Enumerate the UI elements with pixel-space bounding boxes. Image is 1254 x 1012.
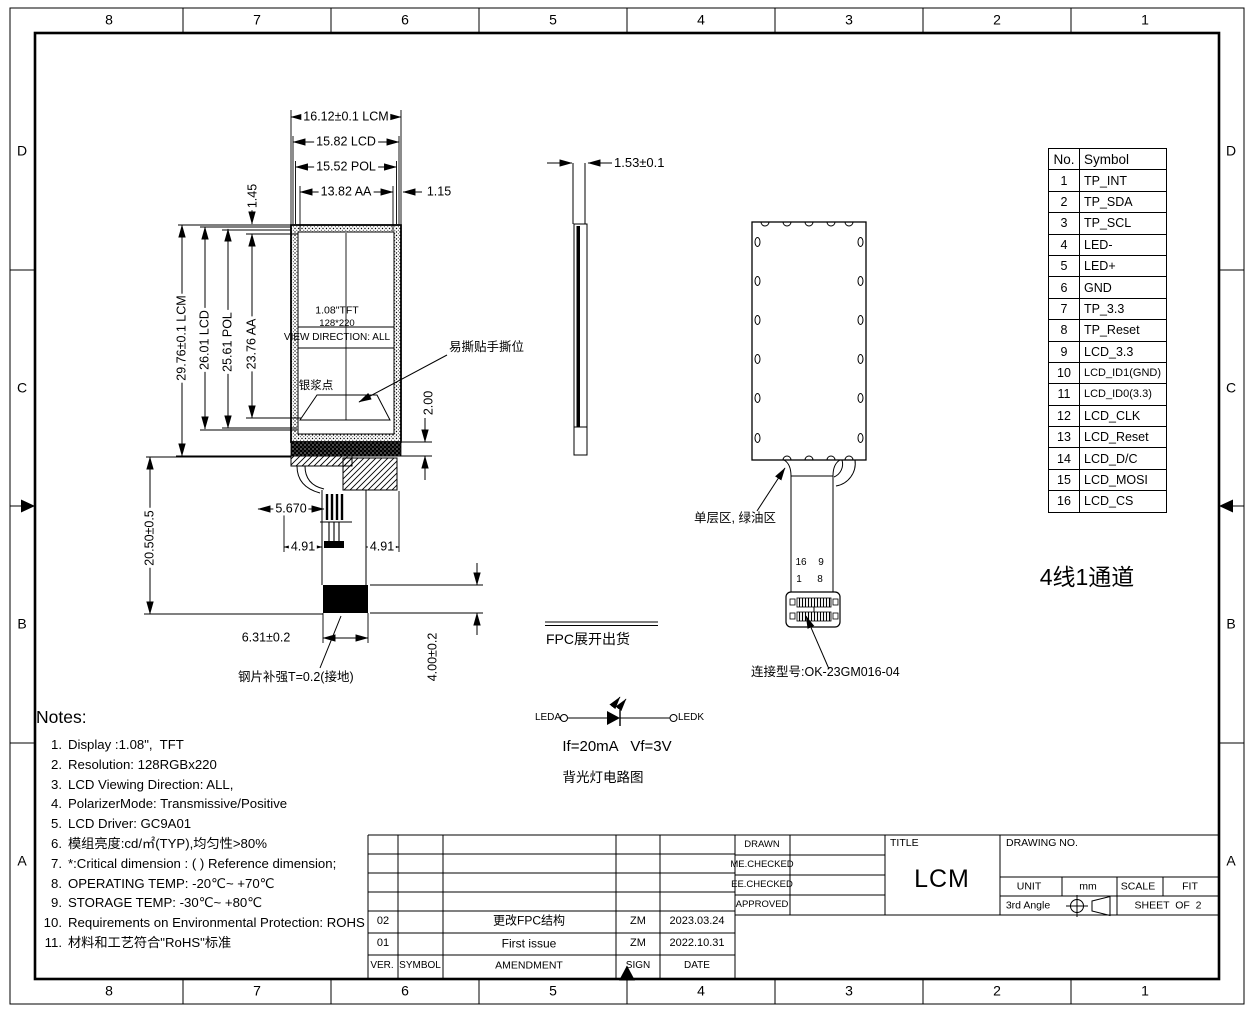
zone-row-right-a: A (1226, 854, 1235, 869)
table-row: 5LED+ (1049, 255, 1167, 276)
fpc-ship-note: FPC展开出货 (546, 632, 630, 647)
table-row: 14LCD_D/C (1049, 448, 1167, 469)
zone-row-right-d: D (1226, 144, 1236, 159)
dim-top-pol: 15.52 POL (314, 160, 378, 173)
pin-no: 4 (1049, 234, 1080, 255)
list-item: 3.LCD Viewing Direction: ALL, (36, 775, 376, 795)
table-row: 13LCD_Reset (1049, 427, 1167, 448)
rev-amendment: 更改FPC结构 (493, 915, 565, 928)
note-text: LCD Driver: GC9A01 (68, 814, 191, 834)
dim-491-right: 4.91 (368, 540, 396, 553)
zone-col-bottom-8: 8 (105, 984, 113, 999)
pin-no: 10 (1049, 362, 1080, 383)
fog-band (291, 442, 401, 456)
dim-400: 4.00±0.2 (426, 633, 439, 682)
note-number: 1. (36, 735, 62, 755)
page-title: LCM (914, 866, 970, 892)
zone-col-top-8: 8 (105, 13, 113, 28)
pin-no: 5 (1049, 255, 1080, 276)
led-spec-label: If=20mA Vf=3V (562, 739, 671, 755)
note-number: 8. (36, 874, 62, 894)
back-view (752, 222, 866, 669)
zone-row-right-b: B (1226, 617, 1235, 632)
note-number: 6. (36, 834, 62, 854)
fpc-pin-8: 8 (817, 575, 823, 586)
list-item: 8.OPERATING TEMP: -20℃~ +70℃ (36, 874, 376, 894)
table-row: 9LCD_3.3 (1049, 341, 1167, 362)
table-row: 7TP_3.3 (1049, 298, 1167, 319)
list-item: 6.模组亮度:cd/㎡(TYP),均匀性>80% (36, 834, 376, 854)
pin-symbol: LCD_D/C (1080, 448, 1167, 469)
list-item: 7.*:Critical dimension : ( ) Reference d… (36, 854, 376, 874)
pin-symbol: LCD_MOSI (1080, 469, 1167, 490)
display-resolution-label: 128*220 (319, 319, 354, 329)
zone-col-bottom-6: 6 (401, 984, 409, 999)
approved-label: APPROVED (736, 900, 789, 910)
note-number: 7. (36, 854, 62, 874)
list-item: 4.PolarizerMode: Transmissive/Positive (36, 794, 376, 814)
pin-table: No.Symbol 1TP_INT 2TP_SDA 3TP_SCL 4LED- … (1048, 148, 1167, 513)
pin-symbol: LCD_ID1(GND) (1080, 362, 1167, 383)
zone-col-top-7: 7 (253, 13, 261, 28)
pin-no: 6 (1049, 277, 1080, 298)
ledk-label: LEDK (678, 713, 704, 724)
rev-sign: ZM (630, 938, 646, 950)
rev-sign: ZM (630, 916, 646, 928)
table-row: 1TP_INT (1049, 170, 1167, 191)
note-number: 11. (36, 933, 62, 953)
zone-col-bottom-7: 7 (253, 984, 261, 999)
dim-200: 2.00 (422, 389, 435, 417)
pin-no: 11 (1049, 384, 1080, 405)
pin-no: 7 (1049, 298, 1080, 319)
fpc-pin-9: 9 (818, 558, 824, 569)
leda-label: LEDA (535, 713, 561, 724)
drawing-no-label: DRAWING NO. (1006, 838, 1078, 849)
table-row: 10LCD_ID1(GND) (1049, 362, 1167, 383)
fpc-pins (327, 494, 342, 520)
pin-symbol: TP_SDA (1080, 191, 1167, 212)
zone-row-left-b: B (17, 617, 26, 632)
dim-145: 1.45 (246, 182, 259, 210)
zone-col-top-3: 3 (845, 13, 853, 28)
rev-header-ver: VER. (370, 961, 393, 972)
scale-value: FIT (1182, 881, 1198, 892)
view-direction-label: VIEW DIRECTION: ALL (284, 333, 390, 344)
pin-no: 3 (1049, 213, 1080, 234)
zone-row-left-a: A (17, 854, 26, 869)
dim-left-lcm: 29.76±0.1 LCM (175, 293, 188, 382)
zone-row-right-c: C (1226, 381, 1236, 396)
table-row: 16LCD_CS (1049, 491, 1167, 512)
tear-tab-label: 易撕贴手撕位 (449, 341, 524, 354)
table-row: 6GND (1049, 277, 1167, 298)
zone-col-bottom-5: 5 (549, 984, 557, 999)
dim-491-left: 4.91 (289, 540, 317, 553)
list-item: 9.STORAGE TEMP: -30℃~ +80℃ (36, 893, 376, 913)
table-row: 12LCD_CLK (1049, 405, 1167, 426)
table-row: 4LED- (1049, 234, 1167, 255)
note-number: 5. (36, 814, 62, 834)
rev-ver: 01 (377, 938, 389, 950)
me-checked-label: ME.CHECKED (730, 860, 793, 870)
pin-symbol: TP_INT (1080, 170, 1167, 191)
rev-date: 2023.03.24 (669, 916, 724, 928)
rev-date: 2022.10.31 (669, 938, 724, 950)
pin-symbol: TP_Reset (1080, 320, 1167, 341)
list-item: 5.LCD Driver: GC9A01 (36, 814, 376, 834)
fpc-pin-16: 16 (795, 558, 806, 569)
dim-left-pol: 25.61 POL (221, 310, 234, 374)
rev-header-symbol: SYMBOL (399, 961, 441, 972)
pin-symbol: LCD_CS (1080, 491, 1167, 512)
channel-note: 4线1通道 (1040, 565, 1135, 589)
dim-5670: 5.670 (273, 502, 308, 515)
dim-115: 1.15 (427, 185, 451, 198)
dim-left-aa: 23.76 AA (245, 317, 258, 372)
zone-col-bottom-3: 3 (845, 984, 853, 999)
pin-no: 15 (1049, 469, 1080, 490)
pin-symbol: TP_SCL (1080, 213, 1167, 234)
pin-symbol: TP_3.3 (1080, 298, 1167, 319)
note-text: PolarizerMode: Transmissive/Positive (68, 794, 287, 814)
connector-shape (786, 592, 840, 627)
table-row: 8TP_Reset (1049, 320, 1167, 341)
list-item: 2.Resolution: 128RGBx220 (36, 755, 376, 775)
pin-no: 14 (1049, 448, 1080, 469)
table-row: 2TP_SDA (1049, 191, 1167, 212)
dim-2050: 20.50±0.5 (143, 508, 156, 568)
zone-col-top-6: 6 (401, 13, 409, 28)
unit-value: mm (1079, 881, 1097, 892)
note-text: Display :1.08", TFT (68, 735, 184, 755)
note-number: 3. (36, 775, 62, 795)
note-text: Requirements on Environmental Protection… (68, 913, 365, 933)
rev-header-sign: SIGN (626, 961, 650, 972)
stiffener-shape (323, 585, 368, 613)
notes-title: Notes: (36, 707, 376, 728)
pin-symbol: LCD_ID0(3.3) (1080, 384, 1167, 405)
pin-symbol: LCD_3.3 (1080, 341, 1167, 362)
pin-symbol: LED+ (1080, 255, 1167, 276)
drawing-sheet: 8 7 6 5 4 3 2 1 8 7 6 5 4 3 2 1 D C B A … (0, 0, 1254, 1012)
rev-amendment: First issue (502, 938, 557, 951)
list-item: 1.Display :1.08", TFT (36, 735, 376, 755)
single-layer-label: 单层区, 绿油区 (694, 512, 776, 525)
title-label: TITLE (890, 838, 919, 849)
ee-checked-label: EE.CHECKED (731, 880, 793, 890)
pin-no: 8 (1049, 320, 1080, 341)
table-row: 3TP_SCL (1049, 213, 1167, 234)
zone-row-left-c: C (17, 381, 27, 396)
note-text: LCD Viewing Direction: ALL, (68, 775, 233, 795)
pin-table-header-no: No. (1049, 149, 1080, 170)
zone-col-bottom-4: 4 (697, 984, 705, 999)
note-text: STORAGE TEMP: -30℃~ +80℃ (68, 893, 262, 913)
connector-label: 连接型号:OK-23GM016-04 (751, 666, 900, 679)
pin-no: 9 (1049, 341, 1080, 362)
list-item: 10.Requirements on Environmental Protect… (36, 913, 376, 933)
center-mark-right (1219, 500, 1233, 513)
note-number: 9. (36, 893, 62, 913)
zone-col-top-1: 1 (1141, 13, 1149, 28)
note-number: 10. (36, 913, 62, 933)
note-text: *:Critical dimension : ( ) Reference dim… (68, 854, 336, 874)
table-row: 11LCD_ID0(3.3) (1049, 384, 1167, 405)
front-view (291, 225, 401, 613)
note-text: 材料和工艺符合"RoHS"标准 (68, 933, 231, 953)
rev-header-date: DATE (684, 961, 710, 972)
note-text: 模组亮度:cd/㎡(TYP),均匀性>80% (68, 834, 267, 854)
title-block-lines (368, 835, 1219, 979)
pin-no: 12 (1049, 405, 1080, 426)
dim-thickness: 1.53±0.1 (614, 156, 665, 170)
single-layer-leader (757, 468, 785, 511)
rev-ver: 02 (377, 916, 389, 928)
note-text: OPERATING TEMP: -20℃~ +70℃ (68, 874, 275, 894)
notes-section: Notes: 1.Display :1.08", TFT 2.Resolutio… (36, 707, 376, 953)
pin-table-header-symbol: Symbol (1080, 149, 1167, 170)
note-number: 2. (36, 755, 62, 775)
zone-col-top-2: 2 (993, 13, 1001, 28)
display-size-label: 1.08"TFT (315, 305, 358, 316)
side-view (547, 163, 612, 455)
pin-no: 1 (1049, 170, 1080, 191)
note-number: 4. (36, 794, 62, 814)
dim-top-aa: 13.82 AA (319, 185, 374, 198)
backlight-caption: 背光灯电路图 (563, 771, 644, 785)
zone-col-bottom-2: 2 (993, 984, 1001, 999)
zone-col-top-5: 5 (549, 13, 557, 28)
pin-no: 2 (1049, 191, 1080, 212)
rev-header-amendment: AMENDMENT (495, 960, 563, 971)
projection-angle-label: 3rd Angle (1006, 900, 1050, 911)
pin-symbol: LED- (1080, 234, 1167, 255)
zone-row-left-d: D (17, 144, 27, 159)
drawn-label: DRAWN (744, 840, 780, 850)
pin-symbol: GND (1080, 277, 1167, 298)
list-item: 11.材料和工艺符合"RoHS"标准 (36, 933, 376, 953)
pin-no: 16 (1049, 491, 1080, 512)
silver-dot-label: 银浆点 (299, 380, 334, 392)
dim-left-lcd: 26.01 LCD (198, 308, 211, 372)
zone-col-bottom-1: 1 (1141, 984, 1149, 999)
fpc-pin-1: 1 (796, 575, 802, 586)
third-angle-symbol-icon (1066, 895, 1110, 917)
note-text: Resolution: 128RGBx220 (68, 755, 217, 775)
pin-symbol: LCD_CLK (1080, 405, 1167, 426)
pin-symbol: LCD_Reset (1080, 427, 1167, 448)
center-mark-left (21, 500, 35, 513)
table-row: 15LCD_MOSI (1049, 469, 1167, 490)
connector-leader (806, 616, 829, 669)
unit-label: UNIT (1017, 881, 1042, 892)
dim-top-lcm: 16.12±0.1 LCM (301, 110, 390, 123)
zone-col-top-4: 4 (697, 13, 705, 28)
pin-no: 13 (1049, 427, 1080, 448)
sheet-label: SHEET OF 2 (1135, 900, 1202, 911)
led-diode-icon (607, 711, 620, 725)
scale-label: SCALE (1121, 881, 1155, 892)
dim-631: 6.31±0.2 (242, 631, 291, 644)
dim-top-lcd: 15.82 LCD (314, 135, 378, 148)
stiffener-label: 钢片补强T=0.2(接地) (238, 671, 354, 684)
